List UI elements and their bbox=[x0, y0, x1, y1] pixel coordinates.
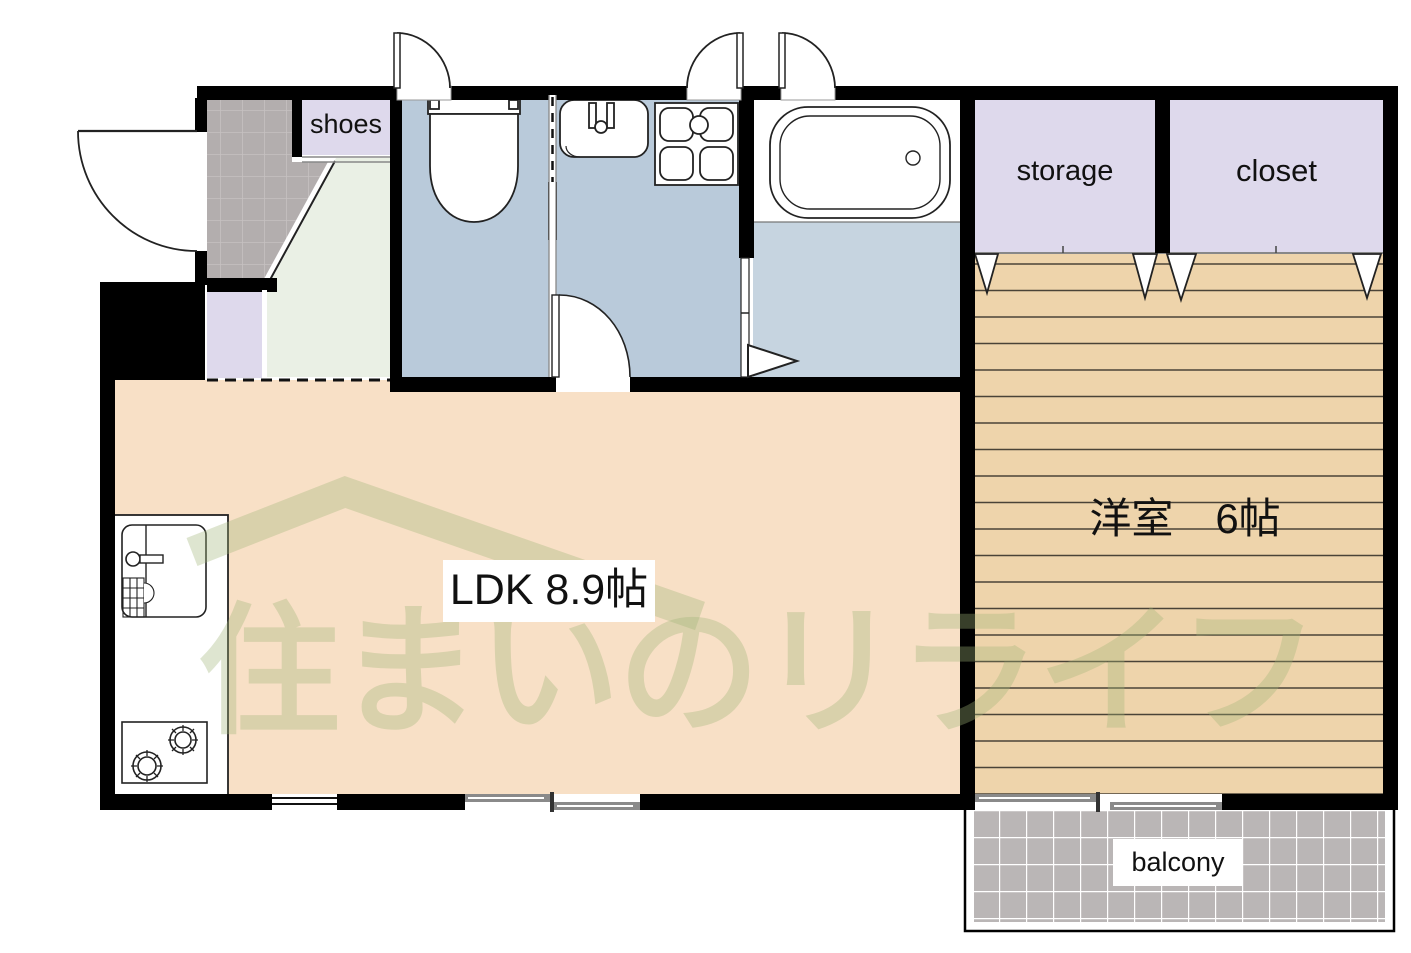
wall-left-upper-a bbox=[195, 98, 207, 134]
wall-toilet-left bbox=[390, 95, 402, 392]
bathroom-floor bbox=[753, 222, 960, 377]
wall-ldk-western bbox=[960, 86, 975, 796]
western-room-label: 洋室 6帖 bbox=[1040, 496, 1330, 542]
ldk-label: LDK 8.9帖 bbox=[443, 560, 655, 622]
wall-washroom-bathroom bbox=[739, 95, 754, 258]
bathtub-icon bbox=[770, 107, 950, 218]
wall-block bbox=[100, 282, 205, 380]
kitchen-counter bbox=[110, 515, 228, 797]
wall-left bbox=[100, 380, 115, 810]
wall-left-upper-b bbox=[195, 249, 207, 285]
stove-icon bbox=[122, 722, 207, 783]
toilet-icon bbox=[428, 98, 520, 222]
entrance-storage bbox=[207, 290, 262, 378]
floor-plan: 住まいのリライフ shoes storage closet 洋室 6帖 LDK … bbox=[0, 0, 1411, 953]
kitchen-sink-icon bbox=[122, 525, 206, 617]
shoes-label: shoes bbox=[302, 110, 390, 140]
entrance-storage-gap bbox=[262, 290, 267, 378]
storage-label: storage bbox=[975, 156, 1155, 188]
wall-right bbox=[1383, 86, 1398, 810]
ldk-window bbox=[272, 794, 337, 810]
washbasin-icon bbox=[560, 100, 648, 157]
closet-label: closet bbox=[1170, 154, 1383, 188]
floor-plan-drawing bbox=[0, 0, 1411, 953]
western-room-sliding-window bbox=[975, 792, 1222, 812]
wall-shoes-left bbox=[292, 95, 302, 157]
washing-machine-pan-icon bbox=[655, 103, 738, 185]
balcony-label: balcony bbox=[1113, 839, 1243, 886]
wall-wet-bottom bbox=[390, 377, 963, 392]
wall-storage-closet bbox=[1155, 95, 1170, 253]
wall-entrance-bottom bbox=[207, 278, 277, 292]
ldk-sliding-door bbox=[465, 792, 640, 812]
